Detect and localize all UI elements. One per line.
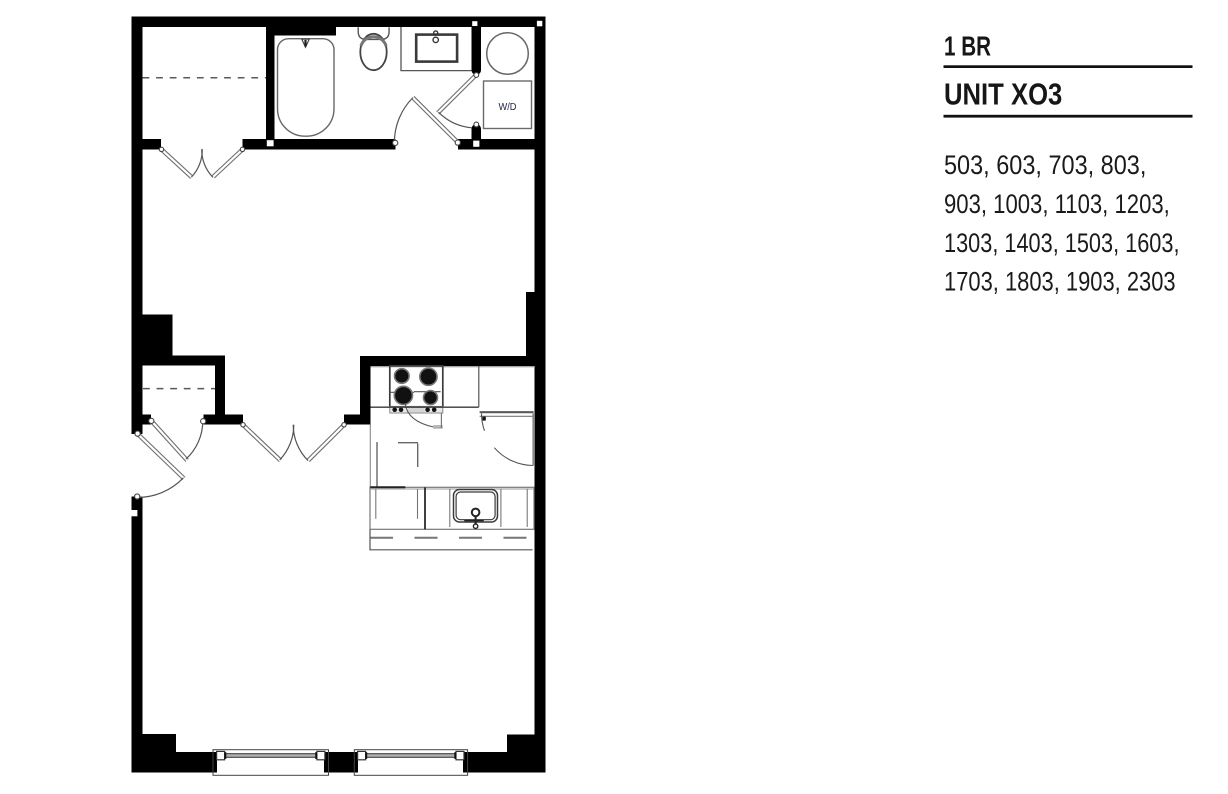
svg-text:1303, 1403, 1503, 1603,: 1303, 1403, 1503, 1603, — [944, 228, 1180, 258]
svg-text:1703, 1803, 1903, 2303: 1703, 1803, 1903, 2303 — [944, 266, 1176, 296]
svg-text:903, 1003, 1103, 1203,: 903, 1003, 1103, 1203, — [944, 189, 1170, 219]
svg-text:1 BR: 1 BR — [944, 30, 991, 61]
svg-text:W/D: W/D — [499, 102, 517, 113]
svg-text:503, 603, 703, 803,: 503, 603, 703, 803, — [944, 150, 1146, 180]
svg-text:UNIT XO3: UNIT XO3 — [944, 77, 1062, 112]
